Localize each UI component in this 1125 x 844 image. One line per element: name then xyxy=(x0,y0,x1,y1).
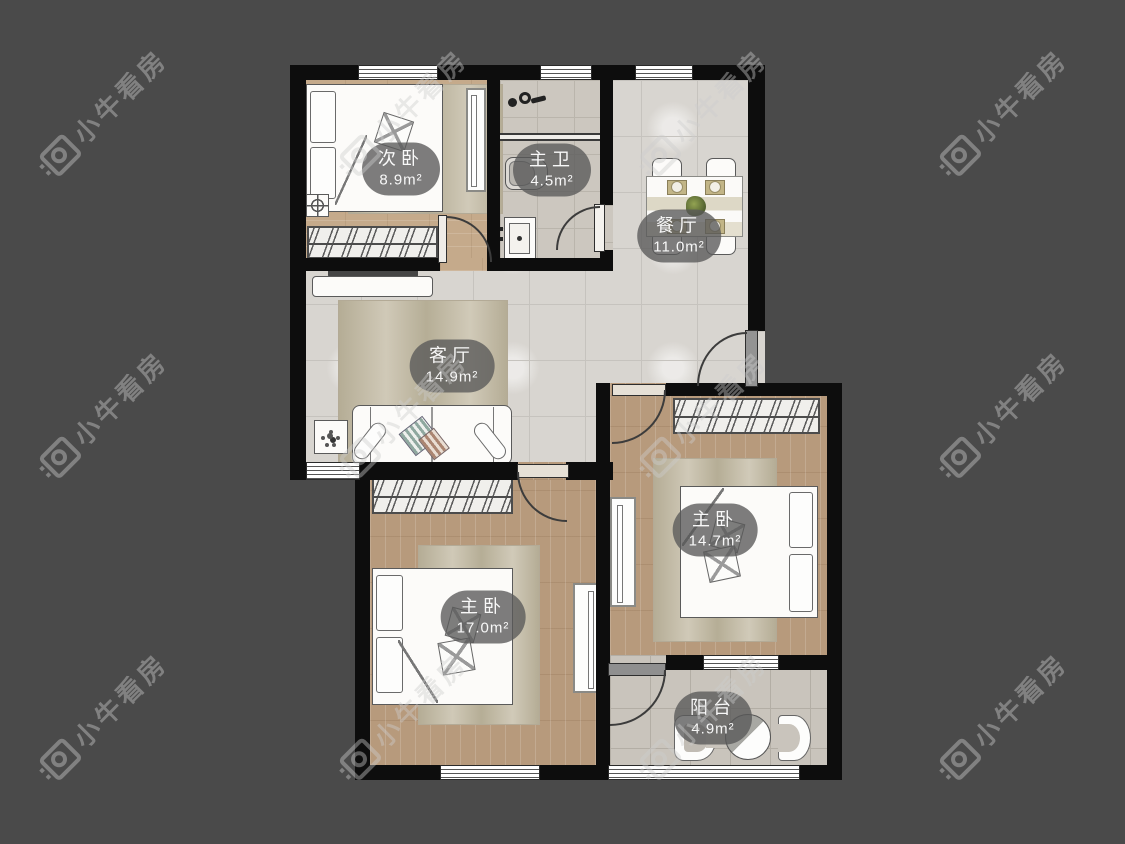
shower-head-icon xyxy=(508,98,517,107)
watermark-camera-icon xyxy=(937,736,982,781)
watermark-camera-icon xyxy=(37,736,82,781)
room-label-balcony: 阳台 4.9m² xyxy=(674,692,752,745)
window xyxy=(540,65,592,80)
blanket-fold xyxy=(398,640,438,703)
room-area: 14.9m² xyxy=(426,368,479,388)
plant-icon xyxy=(327,433,333,439)
wall-segment xyxy=(600,80,613,205)
shower-partition xyxy=(500,133,600,141)
room-area: 4.5m² xyxy=(529,172,575,192)
shower-valve-icon xyxy=(519,92,531,104)
pillow xyxy=(789,492,813,548)
wardrobe-left-bedroom xyxy=(372,477,513,514)
wall-segment xyxy=(777,655,842,670)
wall-segment xyxy=(596,383,610,780)
pillow xyxy=(310,91,336,143)
window xyxy=(306,462,360,480)
wall-segment xyxy=(487,80,500,271)
utility-sink-inner xyxy=(778,724,800,752)
wall-segment xyxy=(355,765,442,780)
window xyxy=(358,65,438,80)
room-label-living-room: 客厅 14.9m² xyxy=(410,340,495,393)
watermark-camera-icon xyxy=(37,434,82,479)
room-name: 餐厅 xyxy=(653,215,705,238)
wall-segment xyxy=(303,258,440,271)
wall-segment xyxy=(666,655,705,670)
room-label-secondary-bedroom: 次卧 8.9m² xyxy=(362,143,440,196)
room-label-dining-room: 餐厅 11.0m² xyxy=(637,210,721,263)
ceiling-fixture-symbol xyxy=(306,194,329,217)
wall-segment xyxy=(290,65,306,480)
tv-stand xyxy=(312,276,433,297)
room-area: 14.7m² xyxy=(689,532,742,552)
window xyxy=(440,765,540,780)
watermark-camera-icon xyxy=(37,132,82,177)
window xyxy=(635,65,693,80)
wall-segment xyxy=(798,765,842,780)
room-name: 阳台 xyxy=(690,697,736,720)
room-area: 8.9m² xyxy=(378,171,424,191)
wardrobe-right-bedroom xyxy=(673,398,820,434)
room-name: 次卧 xyxy=(378,148,424,171)
room-name: 客厅 xyxy=(426,345,479,368)
dining-chair xyxy=(706,158,736,178)
wall-segment xyxy=(827,383,842,780)
wall-segment xyxy=(492,258,613,271)
room-name: 主卫 xyxy=(529,149,575,172)
window xyxy=(703,655,779,670)
room-label-master-bedroom-left: 主卧 17.0m² xyxy=(441,591,526,644)
plate xyxy=(671,181,683,193)
watermark-camera-icon xyxy=(937,132,982,177)
room-label-master-bedroom-right: 主卧 14.7m² xyxy=(673,504,758,557)
dining-chair xyxy=(652,158,682,178)
sink-drain xyxy=(517,236,522,241)
pillow xyxy=(789,554,813,612)
room-name: 主卧 xyxy=(689,509,742,532)
cabinet-secondary xyxy=(466,88,486,192)
room-area: 4.9m² xyxy=(690,720,736,740)
dresser-left-bedroom xyxy=(573,583,598,693)
room-area: 17.0m² xyxy=(457,619,510,639)
wall-segment xyxy=(748,65,765,331)
window xyxy=(608,765,800,780)
wardrobe-secondary xyxy=(307,226,438,259)
floorplan-image: 次卧 8.9m² 主卫 4.5m² 餐厅 11.0m² 客厅 14.9m² 主卧… xyxy=(0,0,1125,844)
pillow xyxy=(310,147,336,199)
watermark-camera-icon xyxy=(937,434,982,479)
room-label-master-bathroom: 主卫 4.5m² xyxy=(513,144,591,197)
wall-segment xyxy=(356,462,518,480)
plate xyxy=(709,181,721,193)
mirror-right-bedroom xyxy=(610,497,636,607)
pillow xyxy=(376,575,403,631)
room-area: 11.0m² xyxy=(653,238,705,258)
wall-segment xyxy=(355,462,370,780)
room-name: 主卧 xyxy=(457,596,510,619)
